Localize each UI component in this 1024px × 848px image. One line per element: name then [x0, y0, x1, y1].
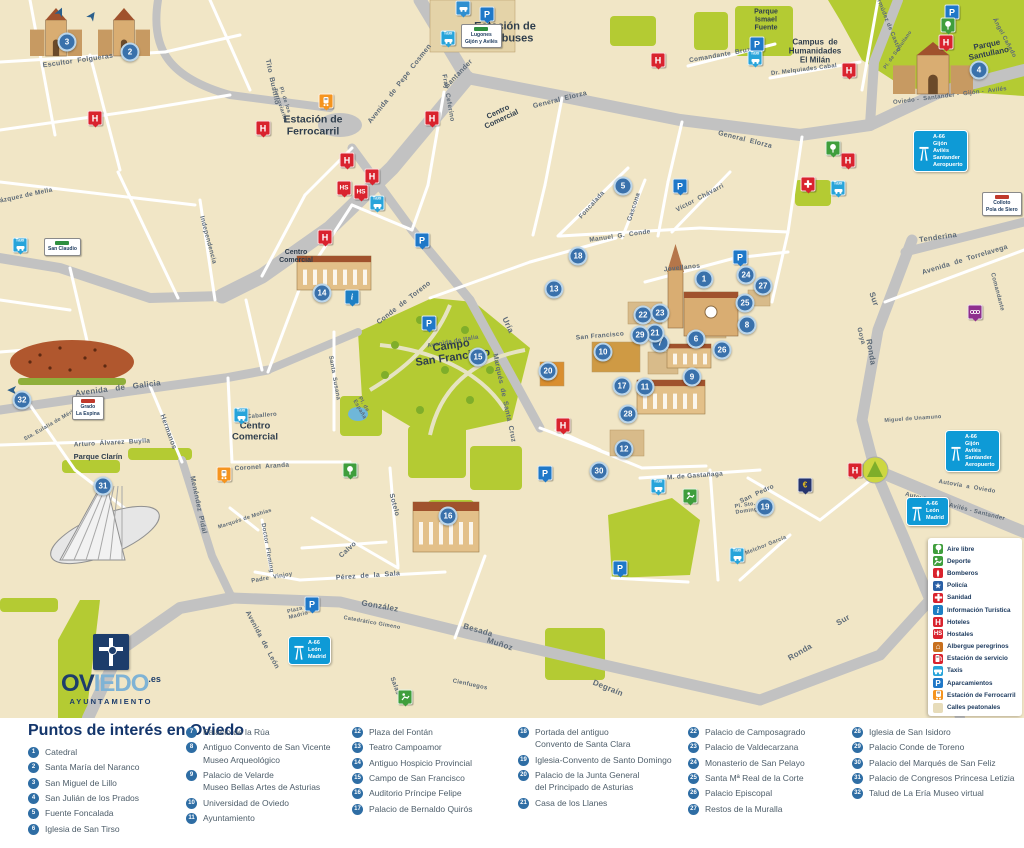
- poi-marker-14: 14: [313, 284, 332, 303]
- poi-marker-8: 8: [738, 316, 757, 335]
- ayuntamiento-drawing-arch: [663, 394, 667, 409]
- legend-item-label: Hostales: [947, 631, 973, 638]
- poi-list-item: 6Iglesia de San Tirso: [28, 823, 193, 835]
- flame-icon: [933, 568, 943, 578]
- poi-label: Palacio Episcopal: [705, 787, 772, 799]
- santa-maria-naranco-drawing-roof: [114, 8, 135, 20]
- parking-marker-icon: P: [673, 179, 688, 194]
- hotel-marker-icon: H: [88, 111, 103, 126]
- legend-item: Taxis: [933, 665, 1022, 677]
- poi-list-item: 10Universidad de Oviedo: [186, 797, 351, 809]
- talud-dot: [48, 366, 51, 369]
- train-marker-icon: [319, 94, 334, 109]
- legend-item-label: Calles peatonales: [947, 704, 1000, 711]
- legend-item-label: Deporte: [947, 558, 971, 565]
- poi-number-badge: 16: [352, 788, 363, 799]
- poi-number-badge: 15: [352, 773, 363, 784]
- info-marker-icon: i: [345, 290, 360, 305]
- park-tree: [416, 406, 424, 414]
- legend-item-label: Policía: [947, 582, 967, 589]
- poi-marker-13: 13: [545, 280, 564, 299]
- star-icon: ★: [933, 581, 943, 591]
- poi-label: Restos de la Muralla: [705, 803, 782, 815]
- poi-marker-10: 10: [594, 343, 613, 362]
- road-destination-sign: Grado La Espina: [72, 396, 104, 420]
- motorway-sign: A-66 León Madrid: [288, 636, 331, 665]
- poi-label: Fuente Foncalada: [45, 807, 114, 819]
- cathedral-roof: [684, 292, 738, 298]
- street: [210, 0, 250, 90]
- hospicio-drawing-arch: [323, 270, 327, 285]
- sanidad-marker-icon: [801, 177, 816, 192]
- poi-label: Antiguo Convento de San Vicente Museo Ar…: [203, 741, 330, 766]
- motorway-sign: A-66 León Madrid: [906, 497, 949, 526]
- motorway-icon: [293, 640, 305, 660]
- tree-marker-icon: [826, 141, 841, 156]
- poi-marker-32: 32: [13, 391, 32, 410]
- poi-number-badge: 31: [852, 773, 863, 784]
- legend-item: Calles peatonales: [933, 701, 1022, 713]
- palacio-drawing-arch: [693, 354, 697, 365]
- taxi-marker-icon: Taxi: [234, 408, 249, 423]
- house-icon: ⌂: [933, 642, 943, 652]
- parking-marker-icon: P: [305, 597, 320, 612]
- parking-marker-icon: P: [422, 316, 437, 331]
- poi-list-item: 15Campo de San Francisco: [352, 772, 517, 784]
- hospicio-drawing-arch: [363, 270, 367, 285]
- poi-number-badge: 5: [28, 808, 39, 819]
- destination-text: San Claudio: [48, 246, 77, 253]
- poi-number-badge: 29: [852, 742, 863, 753]
- poi-label: Palacio de Congresos Princesa Letizia: [869, 772, 1015, 784]
- poi-label: Catedral: [45, 746, 77, 758]
- poi-marker-19: 19: [756, 498, 775, 517]
- poi-list-item: 17Palacio de Bernaldo Quirós: [352, 803, 517, 815]
- street: [545, 98, 562, 185]
- sport-marker-icon: [683, 489, 698, 504]
- san-miguel-lillo-drawing-aisle: [30, 30, 45, 56]
- street: [228, 378, 232, 462]
- tree-marker-icon: [941, 18, 956, 33]
- poi-column-3: 12Plaza del Fontán13Teatro Campoamor14An…: [352, 726, 517, 818]
- talud-dot: [68, 368, 71, 371]
- green-area: [610, 16, 656, 46]
- train-icon: [933, 690, 943, 700]
- legend-item-label: Bomberos: [947, 570, 978, 577]
- poi-label: Palacio del Marqués de San Feliz: [869, 757, 996, 769]
- legend-item: Estación de servicio: [933, 653, 1022, 665]
- legend-item: iInformación Turística: [933, 604, 1022, 616]
- street: [533, 185, 545, 235]
- talud-dot: [58, 346, 61, 349]
- auditorio-drawing-arch: [459, 522, 463, 545]
- poi-number-badge: 9: [186, 770, 197, 781]
- poi-label: Monasterio de San Pelayo: [705, 757, 805, 769]
- poi-marker-15: 15: [469, 348, 488, 367]
- legend-item: Estación de Ferrocarril: [933, 689, 1022, 701]
- poi-number-badge: 4: [28, 793, 39, 804]
- poi-marker-29: 29: [631, 326, 650, 345]
- poi-number-badge: 3: [28, 778, 39, 789]
- poi-list-item: 28Iglesia de San Isidoro: [852, 726, 1017, 738]
- poi-marker-25: 25: [736, 294, 755, 313]
- talud-dot: [83, 356, 86, 359]
- poi-number-badge: 1: [28, 747, 39, 758]
- park-tree: [486, 366, 494, 374]
- hotel-marker-icon: H: [318, 230, 333, 245]
- palacio-drawing-arch: [683, 354, 687, 365]
- congress-centre-sail: [60, 478, 125, 560]
- street: [658, 182, 668, 236]
- victory-cross-icon: [93, 634, 129, 670]
- parking-marker-icon: P: [613, 561, 628, 576]
- hotel-marker-icon: H: [365, 169, 380, 184]
- poi-list-item: 8Antiguo Convento de San Vicente Museo A…: [186, 741, 351, 766]
- poi-number-badge: 27: [688, 804, 699, 815]
- poi-marker-31: 31: [94, 477, 113, 496]
- poi-list-item: 25Santa Mª Real de la Corte: [688, 772, 853, 784]
- park-tree: [381, 371, 389, 379]
- poi-label: Portada del antiguo Convento de Santa Cl…: [535, 726, 630, 751]
- poi-marker-16: 16: [439, 507, 458, 526]
- poi-number-badge: 11: [186, 813, 197, 824]
- poi-list-item: 5Fuente Foncalada: [28, 807, 193, 819]
- poi-list-item: 32Talud de La Ería Museo virtual: [852, 787, 1017, 799]
- sport-marker-icon: [398, 690, 413, 705]
- poi-marker-4: 4: [970, 61, 989, 80]
- legend-item: HSHostales: [933, 628, 1022, 640]
- poi-marker-24: 24: [737, 266, 756, 285]
- park-tree: [461, 326, 469, 334]
- hospicio-drawing-arch: [333, 270, 337, 285]
- taxi-marker-icon: Taxi: [441, 31, 456, 46]
- poi-label: Santa Mª Real de la Corte: [705, 772, 804, 784]
- legend-item-label: Albergue peregrinos: [947, 643, 1009, 650]
- cathedral-tower: [668, 270, 683, 328]
- street: [140, 95, 230, 110]
- poi-label: Palacio de Camposagrado: [705, 726, 805, 738]
- hospicio-drawing-arch: [313, 270, 317, 285]
- ayuntamiento-drawing-arch: [683, 394, 687, 409]
- parking-marker-icon: P: [733, 250, 748, 265]
- legend-item-label: Aparcamientos: [947, 680, 993, 687]
- street: [612, 578, 688, 582]
- euro-marker-icon: €: [798, 478, 813, 493]
- campus-humanidades-label: Campus de Humanidades El Milán: [789, 39, 841, 66]
- talud-dot: [103, 364, 106, 367]
- poi-column-2: 7Palacio de la Rúa8Antiguo Convento de S…: [186, 726, 351, 827]
- hostal-marker-icon: HS: [337, 181, 352, 196]
- legend-item-label: Taxis: [947, 667, 963, 674]
- poi-number-badge: 28: [852, 727, 863, 738]
- centro-comercial-3-label: Centro Comercial: [279, 249, 313, 265]
- motorway-icon: [950, 441, 962, 461]
- poi-column-5: 22Palacio de Camposagrado23Palacio de Va…: [688, 726, 853, 818]
- legend-item-label: Estación de Ferrocarril: [947, 692, 1016, 699]
- ayuntamiento-drawing-arch: [673, 394, 677, 409]
- poi-marker-26: 26: [713, 341, 732, 360]
- poi-number-badge: 14: [352, 758, 363, 769]
- poi-label: Teatro Campoamor: [369, 741, 442, 753]
- oviedo-tourist-map: { "map": { "big_labels": [ {"id":"estaci…: [0, 0, 1024, 848]
- destination-text: Grado La Espina: [76, 404, 100, 417]
- street: [772, 232, 788, 302]
- car-icon: [933, 666, 943, 676]
- poi-label: Iglesia de San Tirso: [45, 823, 120, 835]
- poi-marker-17: 17: [613, 377, 632, 396]
- poi-list-item: 20Palacio de la Junta General del Princi…: [518, 769, 683, 794]
- poi-list-item: 18Portada del antiguo Convento de Santa …: [518, 726, 683, 751]
- street: [412, 185, 428, 230]
- hospicio-drawing-arch: [343, 270, 347, 285]
- poi-list-item: 23Palacio de Valdecarzana: [688, 741, 853, 753]
- taxi-marker-icon: Taxi: [370, 196, 385, 211]
- legend-item: Deporte: [933, 555, 1022, 567]
- poi-marker-11: 11: [636, 378, 655, 397]
- hotel-marker-icon: H: [841, 153, 856, 168]
- motorway-sign-text: A-66 León Madrid: [926, 501, 944, 522]
- estacion-ferrocarril-label: Estación de Ferrocarril: [284, 114, 343, 138]
- green-area: [0, 598, 58, 612]
- parking-marker-icon: P: [415, 233, 430, 248]
- poi-list-item: 14Antiguo Hospicio Provincial: [352, 757, 517, 769]
- P-icon: P: [933, 678, 943, 688]
- poi-marker-3: 3: [58, 33, 77, 52]
- hotel-marker-icon: H: [556, 418, 571, 433]
- H-icon: H: [933, 617, 943, 627]
- hotel-marker-icon: H: [842, 63, 857, 78]
- poi-list-item: 31Palacio de Congresos Princesa Letizia: [852, 772, 1017, 784]
- legend-item-label: Aire libre: [947, 546, 974, 553]
- talud-dot: [38, 353, 41, 356]
- poi-marker-2: 2: [121, 43, 140, 62]
- taxi-marker-icon: Taxi: [730, 548, 745, 563]
- hotel-marker-icon: H: [256, 121, 271, 136]
- main-road: [467, 78, 870, 135]
- poi-number-badge: 20: [518, 770, 529, 781]
- poi-number-badge: 23: [688, 742, 699, 753]
- poi-label: Ayuntamiento: [203, 812, 255, 824]
- pump-icon: [933, 654, 943, 664]
- poi-number-badge: 6: [28, 824, 39, 835]
- legend-item: Aire libre: [933, 543, 1022, 555]
- poi-column-4: 18Portada del antiguo Convento de Santa …: [518, 726, 683, 812]
- poi-label: Talud de La Ería Museo virtual: [869, 787, 984, 799]
- street: [668, 122, 682, 182]
- info-i-icon: i: [933, 605, 943, 615]
- road-number-chip: [55, 241, 69, 245]
- poi-number-badge: 18: [518, 727, 529, 738]
- poi-label: Palacio de la Junta General del Principa…: [535, 769, 639, 794]
- poi-label: Antiguo Hospicio Provincial: [369, 757, 472, 769]
- tree-icon: [933, 544, 943, 554]
- poi-marker-6: 6: [687, 330, 706, 349]
- taxi-marker-icon: Taxi: [748, 51, 763, 66]
- hospicio-drawing-arch: [353, 270, 357, 285]
- poi-marker-5: 5: [614, 177, 633, 196]
- poi-list-item: 3San Miguel de Lillo: [28, 777, 193, 789]
- legend-item-label: Sanidad: [947, 594, 972, 601]
- poi-number-badge: 21: [518, 798, 529, 809]
- ayuntamiento-drawing-arch: [693, 394, 697, 409]
- poi-list-item: 26Palacio Episcopal: [688, 787, 853, 799]
- poi-list-item: 1Catedral: [28, 746, 193, 758]
- motorway-sign-text: A-66 Gijón Avilés Santander Aeropuerto: [933, 134, 963, 168]
- poi-label: Casa de los Llanes: [535, 797, 607, 809]
- poi-marker-30: 30: [590, 462, 609, 481]
- street: [540, 428, 612, 455]
- green-area: [694, 12, 728, 50]
- motorway-icon: [918, 141, 930, 161]
- street: [118, 172, 178, 298]
- main-road: [156, 0, 330, 108]
- poi-label: Plaza del Fontán: [369, 726, 433, 738]
- park-tree: [391, 341, 399, 349]
- motorway-icon: [911, 501, 923, 521]
- legend-item-label: Información Turística: [947, 607, 1011, 614]
- street: [0, 110, 140, 130]
- palacio-drawing-arch: [703, 354, 707, 365]
- poi-list-item: 19Iglesia-Convento de Santo Domingo: [518, 754, 683, 766]
- poi-label: Palacio Conde de Toreno: [869, 741, 964, 753]
- poi-list-item: 29Palacio Conde de Toreno: [852, 741, 1017, 753]
- road-number-chip: [474, 27, 488, 31]
- poi-column-6: 28Iglesia de San Isidoro29Palacio Conde …: [852, 726, 1017, 803]
- taxi-marker-icon: Taxi: [651, 479, 666, 494]
- poi-list-item: 11Ayuntamiento: [186, 812, 351, 824]
- poi-marker-28: 28: [619, 405, 638, 424]
- poi-label: Universidad de Oviedo: [203, 797, 289, 809]
- poi-label: Campo de San Francisco: [369, 772, 465, 784]
- poi-marker-27: 27: [754, 277, 773, 296]
- auditorio-drawing-arch: [429, 522, 433, 545]
- legend-item: PAparcamientos: [933, 677, 1022, 689]
- poi-marker-23: 23: [651, 304, 670, 323]
- oviedo-ayuntamiento-logo: OVIEDO.es AYUNTAMIENTO: [45, 634, 177, 706]
- poi-number-badge: 26: [688, 788, 699, 799]
- legend-item-label: Hoteles: [947, 619, 970, 626]
- green-area: [470, 446, 522, 490]
- san-julian-prados-drawing-door: [928, 75, 938, 94]
- map-legend: Aire libreDeporteBomberos★PolicíaSanidad…: [928, 538, 1022, 716]
- hotel-marker-icon: H: [340, 153, 355, 168]
- poi-list-item: 2Santa María del Naranco: [28, 761, 193, 773]
- street: [820, 482, 868, 520]
- poi-number-badge: 17: [352, 804, 363, 815]
- hotel-marker-icon: H: [848, 463, 863, 478]
- poi-list-item: 4San Julián de los Prados: [28, 792, 193, 804]
- poi-list-item: 22Palacio de Camposagrado: [688, 726, 853, 738]
- poi-number-badge: 10: [186, 798, 197, 809]
- street: [642, 466, 706, 468]
- main-road: [760, 240, 930, 700]
- poi-column-1: 1Catedral2Santa María del Naranco3San Mi…: [28, 746, 193, 838]
- street: [700, 228, 788, 232]
- tree-marker-icon: [343, 463, 358, 478]
- legend-item: ⌂Albergue peregrinos: [933, 641, 1022, 653]
- train-marker-icon: [217, 467, 232, 482]
- poi-list-item: 27Restos de la Muralla: [688, 803, 853, 815]
- road-number-chip: [995, 195, 1009, 199]
- cathedral-rose-window: [705, 306, 717, 318]
- poi-list-item: 21Casa de los Llanes: [518, 797, 683, 809]
- poi-marker-20: 20: [539, 362, 558, 381]
- poi-marker-1: 1: [695, 270, 714, 289]
- poi-list-item: 16Auditorio Príncipe Felipe: [352, 787, 517, 799]
- poi-list-item: 9Palacio de Velarde Museo Bellas Artes d…: [186, 769, 351, 794]
- poi-number-badge: 7: [186, 727, 197, 738]
- poi-number-badge: 24: [688, 758, 699, 769]
- poi-list-item: 12Plaza del Fontán: [352, 726, 517, 738]
- points-of-interest-panel: Puntos de interés en Oviedo 1Catedral2Sa…: [0, 718, 1024, 848]
- poi-label: Palacio de Velarde Museo Bellas Artes de…: [203, 769, 320, 794]
- poi-label: Santa María del Naranco: [45, 761, 140, 773]
- auditorio-drawing-arch: [439, 522, 443, 545]
- legend-item-label: Estación de servicio: [947, 655, 1008, 662]
- HS-icon: HS: [933, 629, 943, 639]
- poi-number-badge: 22: [688, 727, 699, 738]
- ayuntamiento-drawing-arch: [653, 394, 657, 409]
- motorway-sign: A-66 Gijón Avilés Santander Aeropuerto: [913, 130, 968, 172]
- logo-subtitle: AYUNTAMIENTO: [45, 697, 177, 706]
- poi-number-badge: 8: [186, 742, 197, 753]
- hotel-marker-icon: H: [651, 53, 666, 68]
- road-destination-sign: Lugones Gijón y Avilés: [461, 24, 502, 48]
- street: [710, 470, 718, 580]
- main-road: [0, 258, 222, 298]
- road-destination-sign: Colloto Pola de Siero: [982, 192, 1022, 216]
- parking-marker-icon: P: [480, 7, 495, 22]
- taxi-marker-icon: Taxi: [831, 181, 846, 196]
- parque-clarin-label: Parque Clarín: [74, 453, 123, 461]
- sport-icon: [933, 556, 943, 566]
- bus-marker-icon: [456, 1, 471, 16]
- poi-label: Palacio de la Rúa: [203, 726, 270, 738]
- palacio-drawing-arch: [673, 354, 677, 365]
- talud-dot: [28, 360, 31, 363]
- legend-item: Sanidad: [933, 592, 1022, 604]
- cross-icon: [933, 593, 943, 603]
- hospicio-drawing-arch: [303, 270, 307, 285]
- auditorio-drawing-arch: [449, 522, 453, 545]
- hotel-marker-icon: H: [425, 111, 440, 126]
- poi-number-badge: 12: [352, 727, 363, 738]
- poi-number-badge: 19: [518, 755, 529, 766]
- destination-text: Lugones Gijón y Avilés: [465, 32, 498, 45]
- poi-number-badge: 13: [352, 742, 363, 753]
- poi-list-item: 7Palacio de la Rúa: [186, 726, 351, 738]
- legend-item: HHoteles: [933, 616, 1022, 628]
- hostal-marker-icon: HS: [354, 185, 369, 200]
- motorway-sign-text: A-66 León Madrid: [308, 640, 326, 661]
- green-area: [408, 426, 466, 478]
- poi-label: San Miguel de Lillo: [45, 777, 117, 789]
- poi-list-item: 24Monasterio de San Pelayo: [688, 757, 853, 769]
- legend-item: Bomberos: [933, 567, 1022, 579]
- street: [0, 300, 70, 310]
- logo-wordmark: OVIEDO.es: [45, 672, 177, 696]
- poi-label: Iglesia de San Isidoro: [869, 726, 951, 738]
- poi-marker-12: 12: [615, 440, 634, 459]
- poi-list-item: 13Teatro Campoamor: [352, 741, 517, 753]
- park-tree: [466, 396, 474, 404]
- park-tree: [441, 366, 449, 374]
- parking-marker-icon: P: [538, 466, 553, 481]
- poi-number-badge: 2: [28, 762, 39, 773]
- poi-number-badge: 25: [688, 773, 699, 784]
- poi-marker-22: 22: [634, 306, 653, 325]
- road-destination-sign: San Claudio: [44, 238, 81, 256]
